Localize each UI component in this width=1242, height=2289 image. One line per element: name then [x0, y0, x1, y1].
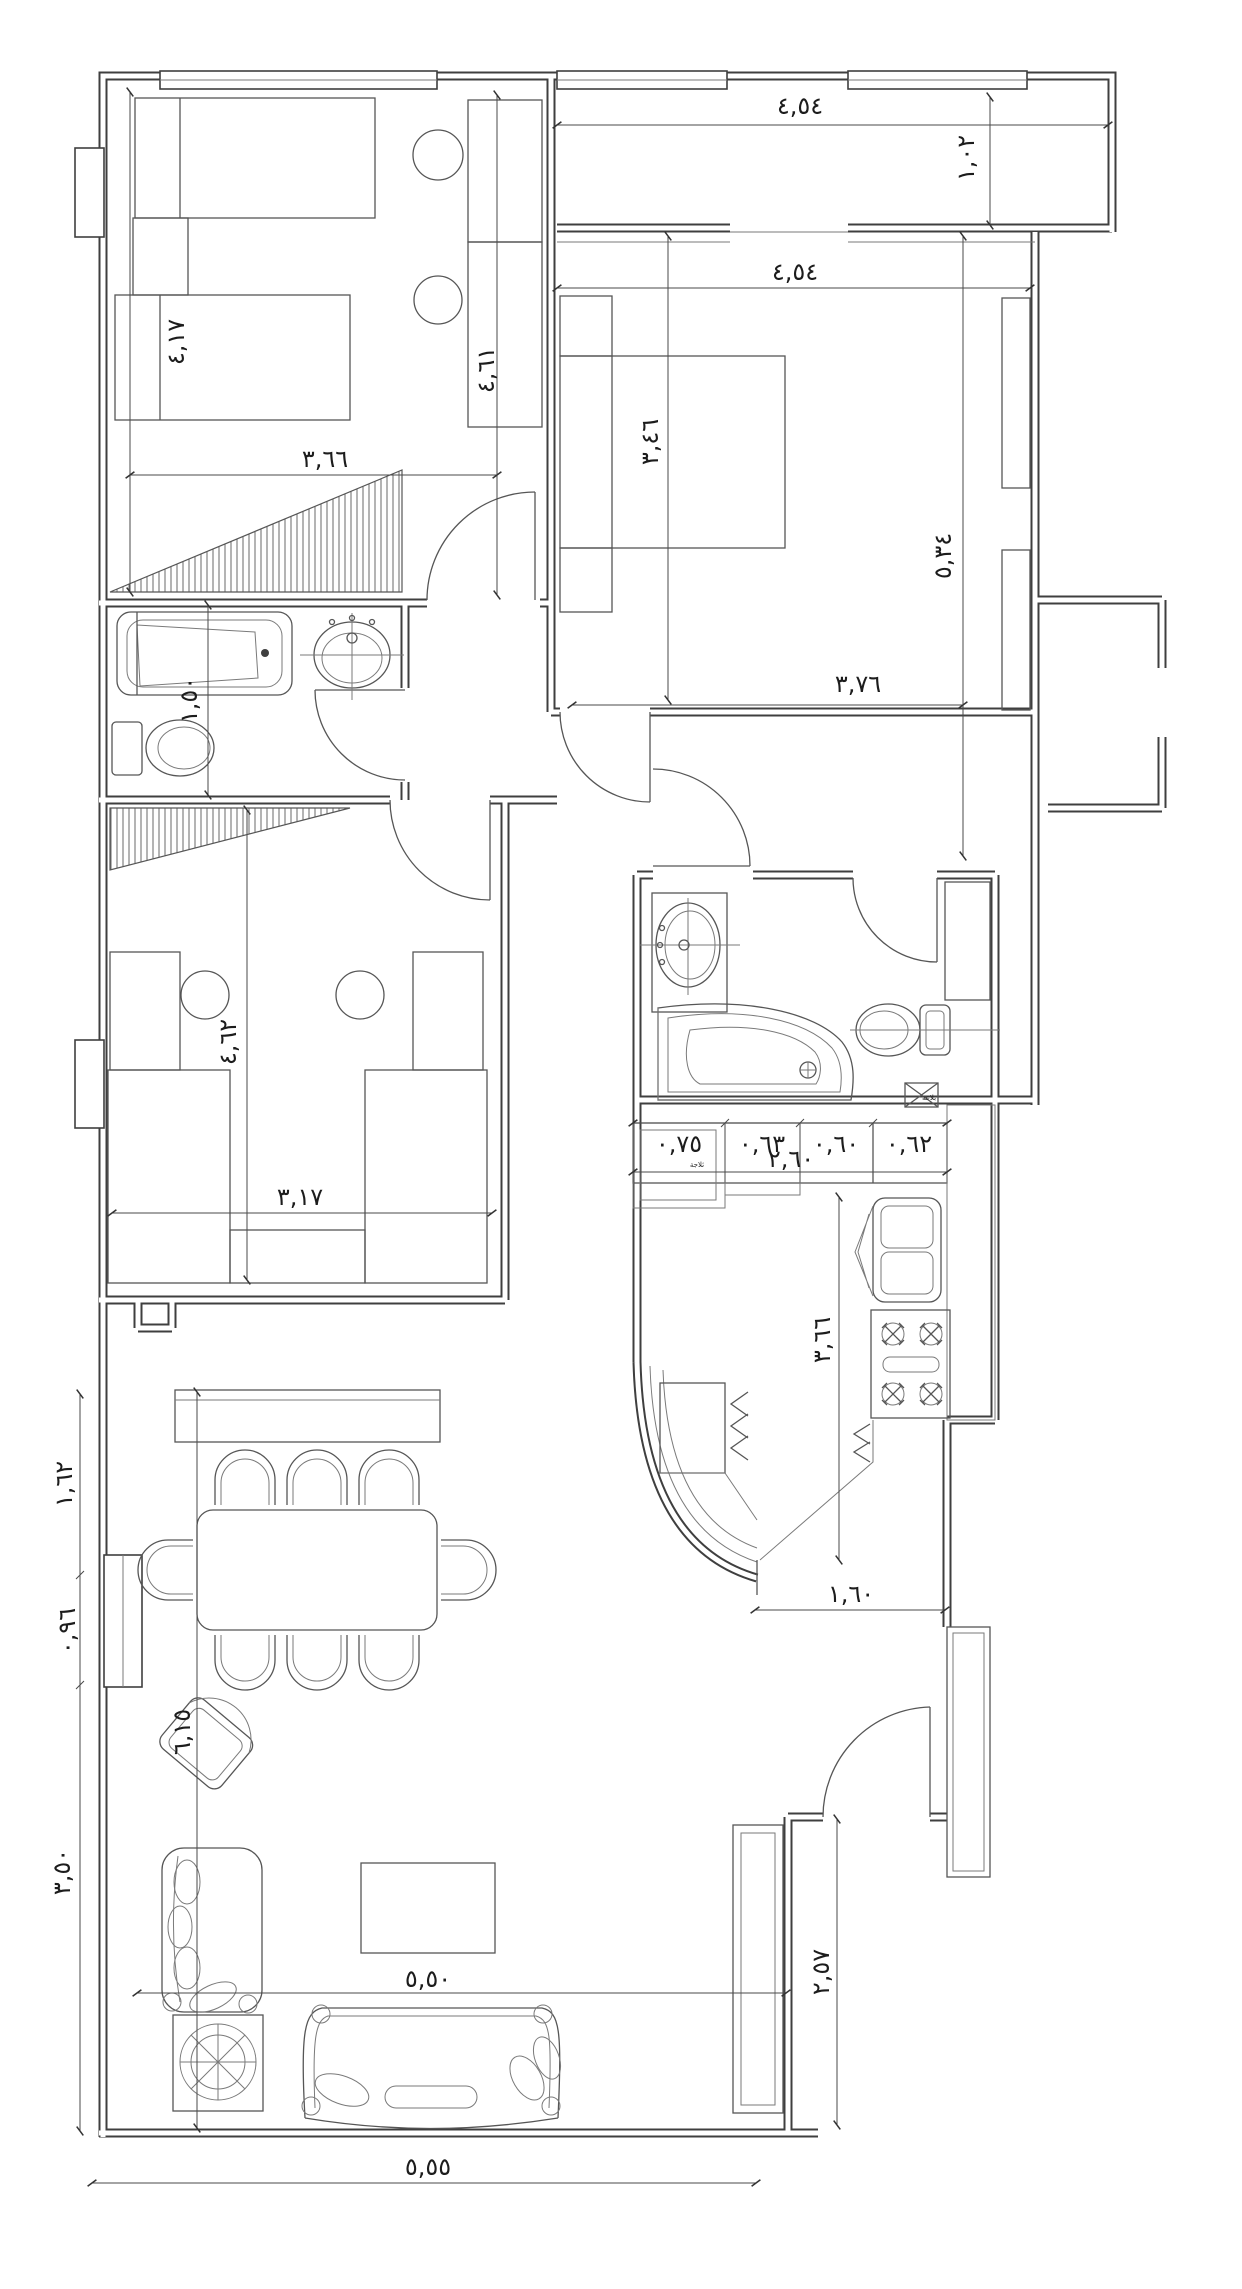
stool-symbol: [181, 971, 229, 1019]
counter-unit-label: ثلاجة: [690, 1161, 704, 1169]
sink-symbol: [640, 898, 740, 995]
toilet-symbol: [850, 1004, 1000, 1056]
tv-table-symbol: [361, 1863, 495, 1953]
bar-counter: [650, 1366, 873, 1595]
sink-symbol: [300, 613, 404, 700]
dimension-label-left-seg-1: ١,٦٢: [50, 1461, 78, 1507]
dimension-label-kitchen-seg-3: ٠,٦٠: [813, 1130, 859, 1158]
dining-table-symbol: [197, 1510, 437, 1630]
stool-symbol: [413, 130, 463, 180]
door-arc: [315, 690, 405, 780]
nightstand-symbol: [560, 548, 612, 612]
bathtub-symbol: [117, 612, 292, 695]
door-arc: [823, 1707, 930, 1817]
dimension-label-master-bed-length: ٣,٤٦: [636, 419, 664, 465]
bathroom1-fixtures: [112, 612, 404, 776]
dimension-label-bathroom1-depth: ١,٥٠: [175, 677, 203, 723]
dining-furniture: [138, 1390, 496, 1690]
dimension-label-bedroom2-width: ٣,١٧: [277, 1183, 323, 1211]
wardrobes: [110, 470, 402, 870]
table-symbol: [230, 1230, 365, 1283]
dimension-label-bedroom1-right-depth: ٤,٦١: [472, 347, 500, 393]
dimension-label-kitchen-seg-4: ٠,٦٢: [886, 1130, 932, 1158]
dimension-label-bedroom1-left-depth: ٤,١٧: [162, 319, 190, 365]
desk-symbol: [468, 242, 542, 427]
dishwasher-symbol: [731, 1392, 748, 1460]
desk-symbol: [468, 100, 542, 242]
dimension-label-overall-bottom-width: ٥,٥٥: [405, 2153, 451, 2181]
wardrobe-hatch: [110, 470, 402, 592]
dimension-label-living-width: ٥,٥٠: [405, 1965, 451, 1993]
door-arc: [427, 492, 535, 600]
living-furniture: [156, 1683, 566, 2129]
wall-pier: [945, 882, 990, 1000]
dimension-label-left-seg-3: ٣,٥٠: [48, 1849, 76, 1895]
door-arc: [853, 878, 937, 962]
door-arc: [560, 712, 650, 802]
sofa-symbol: [302, 2005, 566, 2129]
wardrobe-symbol: [1002, 298, 1030, 488]
door-arc: [390, 800, 490, 900]
door-arc: [653, 769, 750, 866]
chair-symbol: [138, 1450, 496, 1690]
bed-symbol: [110, 952, 180, 1070]
dimension-label-balcony-depth: ١,٠٢: [952, 135, 980, 181]
dimension-label-master-width: ٤,٥٤: [772, 258, 818, 286]
dimension-label-master-bottom-width: ٣,٧٦: [835, 670, 881, 698]
wardrobe-symbol: [1002, 550, 1030, 710]
dimension-label-terrace-height: ٢,٥٧: [807, 1949, 835, 1995]
bath-drain-label: بلاعة: [922, 1094, 936, 1102]
dimension-label-entry-opening: ١,٦٠: [828, 1580, 874, 1608]
bed-symbol: [115, 295, 350, 420]
bed-symbol: [108, 1070, 230, 1283]
dimension-label-living-height: ٦,١٥: [168, 1709, 196, 1755]
nightstand-symbol: [133, 218, 188, 295]
dimension-label-kitchen-total: ٢,٦٠: [768, 1145, 814, 1173]
bed-symbol: [560, 356, 785, 548]
bed-symbol: [135, 98, 375, 218]
floor-plan-canvas: ٤,٥٤١,٠٢٤,٥٤٣,٤٦٥,٣٤٣,٧٦٤,١٧٤,٦١٣,٦٦١,٥٠…: [0, 0, 1242, 2289]
dimension-label-bedroom2-depth: ٤,٦٢: [214, 1019, 242, 1065]
wardrobe-hatch: [110, 808, 350, 870]
kitchen-sink-symbol: [855, 1198, 941, 1302]
dishwasher-symbol: [854, 1424, 870, 1462]
dimension-label-bedroom1-width: ٣,٦٦: [302, 445, 348, 473]
bedroom2-furniture: [108, 952, 487, 1283]
toilet-symbol: [112, 720, 214, 776]
dimension-label-kitchen-seg-1: ٠,٧٥: [656, 1130, 702, 1158]
bathtub-symbol: [658, 1004, 853, 1100]
bed-symbol: [365, 1070, 487, 1283]
master-bedroom-furniture: [560, 296, 1030, 710]
dimension-label-balcony-width: ٤,٥٤: [777, 92, 823, 120]
wall-niche: [75, 148, 104, 237]
sideboard-symbol: [175, 1390, 440, 1442]
dimension-label-master-depth: ٥,٣٤: [929, 533, 957, 579]
stove-symbol: [871, 1310, 950, 1418]
plant-symbol: [173, 2015, 263, 2111]
nightstand-symbol: [560, 296, 612, 356]
stool-symbol: [336, 971, 384, 1019]
wall-niche: [75, 1040, 104, 1128]
dimension-label-left-seg-2: ٠,٩٦: [53, 1608, 81, 1654]
stool-symbol: [414, 276, 462, 324]
dimension-label-kitchen-depth: ٣,٦٦: [808, 1317, 836, 1363]
dimension-labels-layer: ٤,٥٤١,٠٢٤,٥٤٣,٤٦٥,٣٤٣,٧٦٤,١٧٤,٦١٣,٦٦١,٥٠…: [48, 92, 980, 2181]
bed-symbol: [413, 952, 483, 1070]
